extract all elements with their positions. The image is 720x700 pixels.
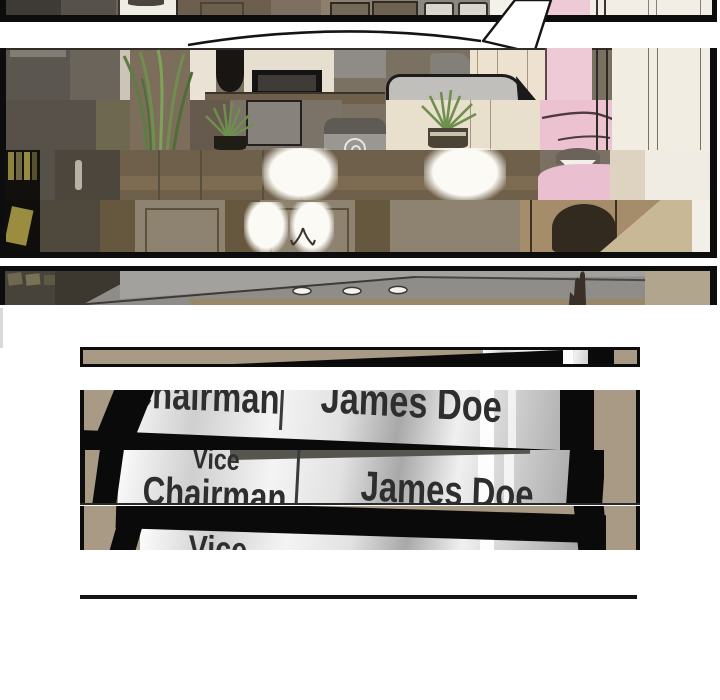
plant-pot — [214, 136, 246, 150]
nameplate-fragment-main: Vice Chairman James Doe — [80, 450, 640, 505]
glow-highlight — [244, 202, 288, 254]
speech-bubble-arc — [188, 31, 481, 45]
nameplate-fragment-bottom: Vice — [80, 506, 640, 550]
black-vase-drawing — [216, 50, 244, 92]
panel-border-left — [0, 48, 6, 258]
potted-plant-drawing — [414, 90, 478, 130]
cabinet-handle — [75, 160, 82, 190]
glitch-seam-line — [80, 503, 640, 505]
glow-highlight — [262, 148, 338, 202]
glow-highlight — [424, 148, 506, 202]
plate-edge-wedge — [233, 350, 563, 364]
tall-plant-drawing — [118, 48, 196, 166]
tiny-figure-scribble — [288, 220, 318, 248]
nameplate-title-partial: Vice — [188, 530, 248, 550]
potted-plant-drawing — [200, 102, 256, 138]
comic-page[interactable]: NORU — [0, 0, 720, 700]
raised-hand-silhouette — [555, 270, 605, 305]
panel-divider-rule — [80, 595, 637, 599]
nameplate-person-name: James Doe — [360, 465, 534, 505]
left-edge-artifact — [0, 308, 3, 348]
small-tail-glitch — [510, 76, 540, 102]
nameplate-fragment-top: Chairman James Doe — [80, 390, 640, 450]
panel-ceiling — [0, 266, 717, 305]
nameplate-title-line2: Chairman — [142, 471, 287, 505]
panel-nameplate-sliver — [80, 347, 640, 367]
speech-bubble-tail — [483, 0, 551, 53]
ceiling-lights — [293, 286, 407, 294]
panel-border-bottom — [0, 252, 717, 258]
plant-pot — [428, 128, 468, 148]
panel-border-right — [710, 48, 717, 258]
character-head-silhouette — [552, 204, 616, 252]
pink-figure — [545, 48, 592, 100]
panel-office: NORU — [0, 48, 717, 258]
